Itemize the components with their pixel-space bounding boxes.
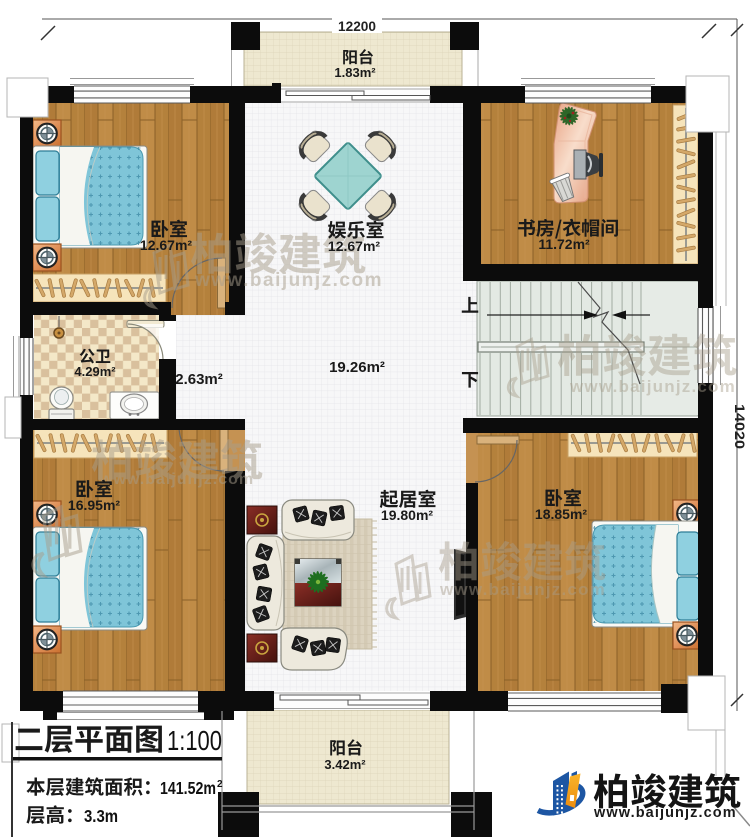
svg-text:3.3m: 3.3m	[84, 806, 118, 826]
svg-text:4.29m²: 4.29m²	[74, 364, 116, 379]
svg-text:www.baijunjz.com: www.baijunjz.com	[439, 580, 606, 599]
svg-text:3.42m²: 3.42m²	[324, 757, 366, 772]
svg-text:www.baijunjz.com: www.baijunjz.com	[593, 805, 737, 821]
svg-text:1:100: 1:100	[167, 725, 222, 756]
svg-text:141.52m: 141.52m	[160, 778, 216, 798]
svg-text:www.baijunjz.com: www.baijunjz.com	[194, 270, 383, 291]
svg-text:19.26m²: 19.26m²	[329, 359, 385, 376]
svg-text:12.67m²: 12.67m²	[140, 237, 192, 253]
svg-text:2.63m²: 2.63m²	[175, 371, 223, 388]
svg-text:16.95m²: 16.95m²	[68, 497, 120, 513]
svg-text:www.baijunjz.com: www.baijunjz.com	[569, 377, 736, 396]
svg-text:www.baijunjz.com: www.baijunjz.com	[99, 471, 254, 488]
svg-text:14020: 14020	[732, 404, 748, 449]
svg-text:18.85m²: 18.85m²	[535, 506, 587, 522]
svg-text:12.67m²: 12.67m²	[328, 238, 380, 254]
svg-text:1.83m²: 1.83m²	[334, 65, 376, 80]
svg-text:11.72m²: 11.72m²	[538, 236, 590, 252]
svg-text:19.80m²: 19.80m²	[381, 507, 433, 523]
svg-text:12200: 12200	[338, 18, 376, 34]
svg-text:2: 2	[217, 779, 223, 790]
